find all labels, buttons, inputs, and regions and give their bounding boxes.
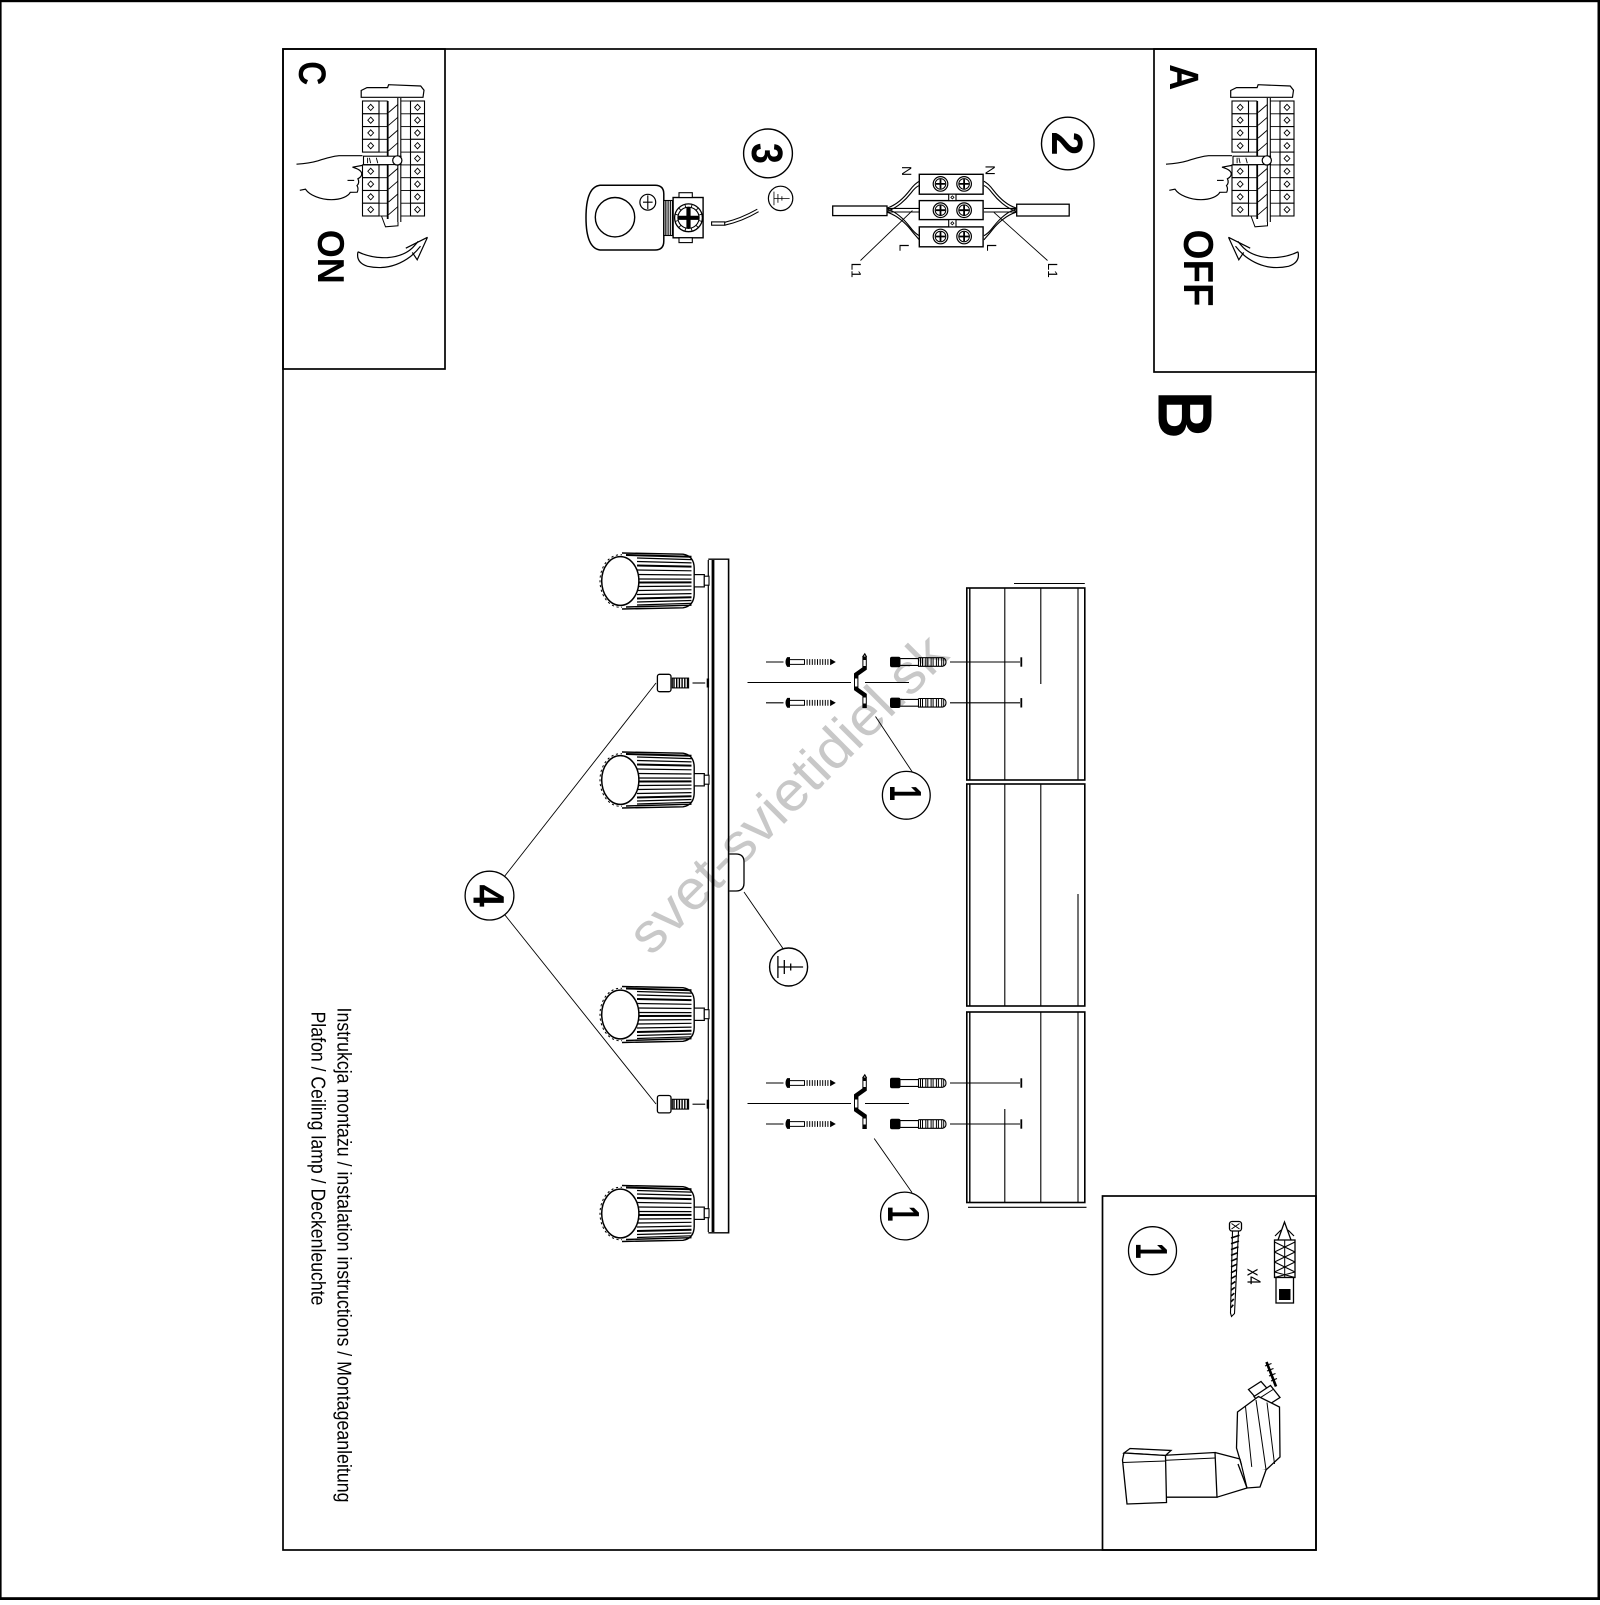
svg-text:Plafon / Ceiling lamp / Decken: Plafon / Ceiling lamp / Deckenleuchte [306, 1012, 328, 1306]
svg-text:2: 2 [1042, 132, 1091, 156]
svg-text:L: L [984, 244, 999, 252]
svg-text:N: N [982, 165, 997, 175]
svg-text:N: N [899, 166, 914, 176]
svg-text:1: 1 [1126, 1243, 1177, 1259]
svg-text:B: B [1142, 391, 1228, 439]
svg-text:4: 4 [464, 885, 513, 908]
svg-text:C: C [290, 61, 333, 85]
svg-text:x4: x4 [1243, 1269, 1264, 1285]
svg-text:1: 1 [878, 1206, 929, 1222]
svg-text:1: 1 [880, 785, 931, 801]
svg-text:ON: ON [310, 230, 352, 284]
svg-text:3: 3 [742, 143, 791, 164]
svg-text:L: L [896, 244, 911, 252]
svg-text:OFF: OFF [1175, 230, 1222, 307]
svg-text:A: A [1161, 64, 1207, 90]
svg-text:Instrukcja montażu / instalati: Instrukcja montażu / instalation instruc… [332, 1008, 354, 1503]
svg-text:L1: L1 [848, 263, 863, 278]
svg-text:L1: L1 [1045, 263, 1060, 278]
